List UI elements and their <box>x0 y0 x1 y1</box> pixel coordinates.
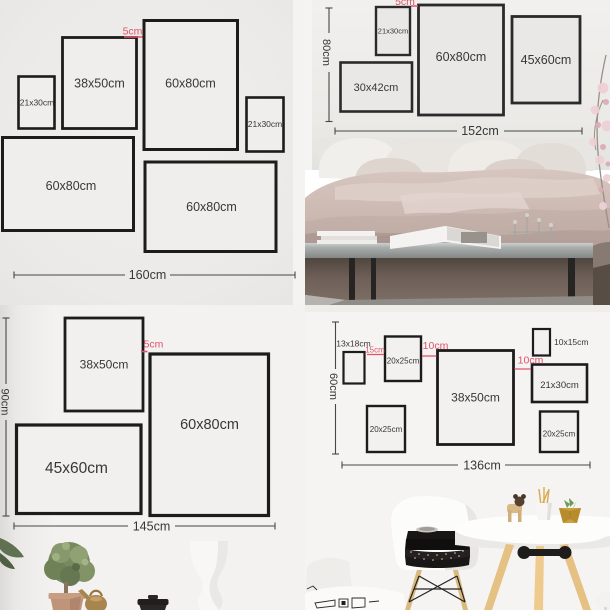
svg-text:5cm: 5cm <box>144 339 164 351</box>
svg-text:20x25cm: 20x25cm <box>387 357 420 366</box>
svg-text:10x15cm: 10x15cm <box>554 337 589 347</box>
svg-text:15cm: 15cm <box>365 346 385 355</box>
svg-text:38x50cm: 38x50cm <box>80 358 129 372</box>
svg-text:80cm: 80cm <box>320 39 332 66</box>
svg-text:60x80cm: 60x80cm <box>436 50 487 64</box>
svg-text:90cm: 90cm <box>0 389 11 416</box>
svg-text:21x30cm: 21x30cm <box>540 380 579 391</box>
svg-text:21x30cm: 21x30cm <box>378 27 408 36</box>
svg-text:5cm: 5cm <box>395 0 415 8</box>
svg-text:60cm: 60cm <box>327 373 339 400</box>
svg-text:145cm: 145cm <box>133 520 171 534</box>
svg-text:38x50cm: 38x50cm <box>451 391 500 405</box>
svg-text:21x30cm: 21x30cm <box>20 98 55 108</box>
svg-text:20x25cm: 20x25cm <box>543 430 576 439</box>
svg-text:20x25cm: 20x25cm <box>370 425 403 434</box>
svg-text:136cm: 136cm <box>463 459 501 473</box>
svg-text:10cm: 10cm <box>518 355 544 367</box>
svg-text:45x60cm: 45x60cm <box>521 53 572 67</box>
svg-text:10cm: 10cm <box>423 340 449 352</box>
svg-text:30x42cm: 30x42cm <box>354 82 399 94</box>
svg-text:60x80cm: 60x80cm <box>186 200 237 214</box>
svg-text:60x80cm: 60x80cm <box>165 77 216 91</box>
svg-text:60x80cm: 60x80cm <box>46 179 97 193</box>
svg-text:38x50cm: 38x50cm <box>74 77 125 91</box>
svg-text:60x80cm: 60x80cm <box>180 417 239 433</box>
svg-text:5cm: 5cm <box>123 26 143 38</box>
svg-text:152cm: 152cm <box>461 124 499 138</box>
svg-text:45x60cm: 45x60cm <box>45 460 108 477</box>
svg-text:160cm: 160cm <box>129 268 167 282</box>
svg-text:21x30cm: 21x30cm <box>248 119 283 129</box>
